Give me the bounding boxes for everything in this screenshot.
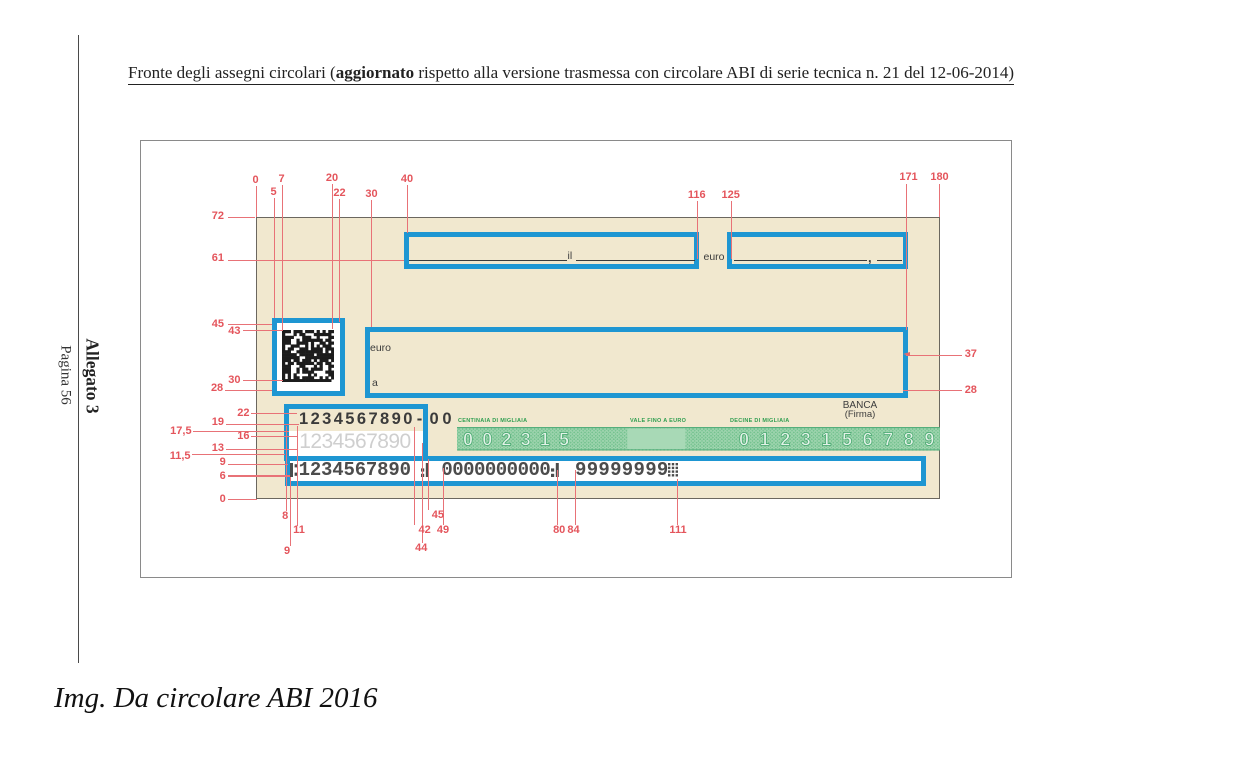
svg-text:9: 9 — [924, 430, 934, 450]
svg-text:2: 2 — [780, 430, 790, 450]
svg-text:1: 1 — [821, 430, 831, 450]
svg-text:0: 0 — [739, 430, 749, 450]
svg-text:0: 0 — [482, 430, 492, 450]
svg-text:2: 2 — [501, 430, 511, 450]
svg-text:8: 8 — [903, 430, 913, 450]
svg-text:6: 6 — [862, 430, 872, 450]
svg-text:5: 5 — [842, 430, 852, 450]
svg-text:7: 7 — [883, 430, 893, 450]
svg-text:0: 0 — [463, 430, 473, 450]
svg-text:5: 5 — [559, 430, 569, 450]
svg-text:3: 3 — [800, 430, 810, 450]
svg-text:1: 1 — [539, 430, 549, 450]
svg-text:3: 3 — [520, 430, 530, 450]
svg-text:1: 1 — [759, 430, 769, 450]
